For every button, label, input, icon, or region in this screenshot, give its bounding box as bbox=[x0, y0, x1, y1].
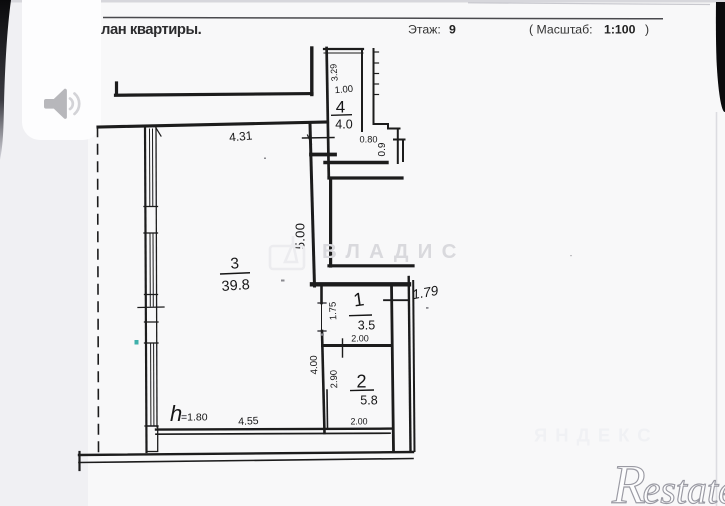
svg-text:4.55: 4.55 bbox=[238, 415, 259, 428]
svg-text:1.75: 1.75 bbox=[327, 301, 339, 320]
svg-text:2.90: 2.90 bbox=[329, 370, 341, 389]
svg-text:=1.80: =1.80 bbox=[181, 412, 208, 424]
svg-text:1:100: 1:100 bbox=[604, 23, 636, 37]
svg-text:9: 9 bbox=[449, 23, 456, 37]
svg-text:5.8: 5.8 bbox=[360, 394, 377, 408]
svg-text:4: 4 bbox=[336, 98, 345, 117]
svg-text:0.80: 0.80 bbox=[360, 135, 378, 145]
svg-text:4.00: 4.00 bbox=[309, 355, 321, 375]
svg-text:4.0: 4.0 bbox=[335, 118, 352, 132]
svg-text:2.00: 2.00 bbox=[351, 334, 369, 344]
svg-text:( Масштаб:: ( Масштаб: bbox=[529, 23, 593, 37]
svg-text:3.5: 3.5 bbox=[358, 319, 375, 333]
svg-text:2.00: 2.00 bbox=[350, 417, 367, 427]
svg-text:Этаж:: Этаж: bbox=[408, 23, 441, 37]
svg-text:3: 3 bbox=[230, 255, 240, 273]
svg-text:4.31: 4.31 bbox=[228, 128, 253, 144]
svg-text:): ) bbox=[645, 23, 649, 37]
svg-text:ЯНДЕКС: ЯНДЕКС bbox=[534, 425, 659, 446]
svg-text:ВЛАДИС: ВЛАДИС bbox=[322, 240, 466, 263]
svg-text:лан квартиры.: лан квартиры. bbox=[101, 22, 202, 38]
svg-text:39.8: 39.8 bbox=[221, 277, 250, 295]
svg-text:2: 2 bbox=[356, 372, 366, 392]
svg-text:1.00: 1.00 bbox=[334, 84, 353, 97]
svg-text:0.9: 0.9 bbox=[377, 142, 388, 156]
svg-text:3.29: 3.29 bbox=[328, 63, 339, 81]
